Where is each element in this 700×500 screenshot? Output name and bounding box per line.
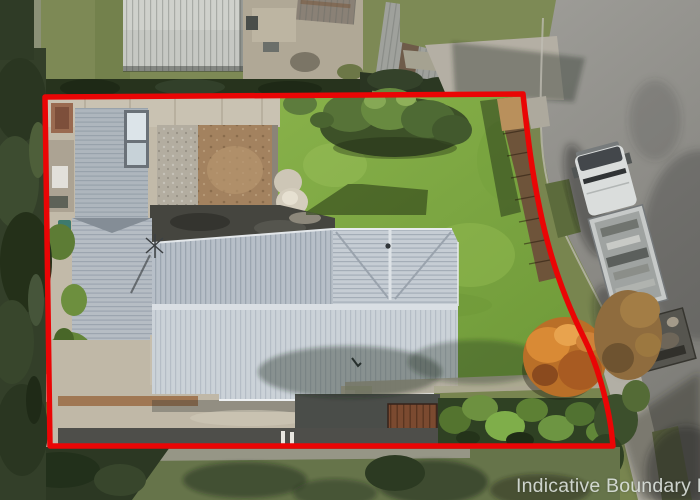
aerial-scene [0, 0, 700, 500]
trees-left-column [0, 0, 52, 500]
bird-on-roof [385, 243, 390, 248]
aerial-property-photo: Indicative Boundary Lin [0, 0, 700, 500]
roof-ridge [152, 304, 458, 310]
tree-shadow-road-4 [629, 80, 681, 160]
skylight-window [127, 113, 146, 140]
street-verge-bottom [0, 447, 620, 500]
autumn-tree-outside [594, 290, 662, 380]
bushes-bottom-right [438, 395, 610, 448]
neighbor-shed-roof [123, 0, 243, 72]
